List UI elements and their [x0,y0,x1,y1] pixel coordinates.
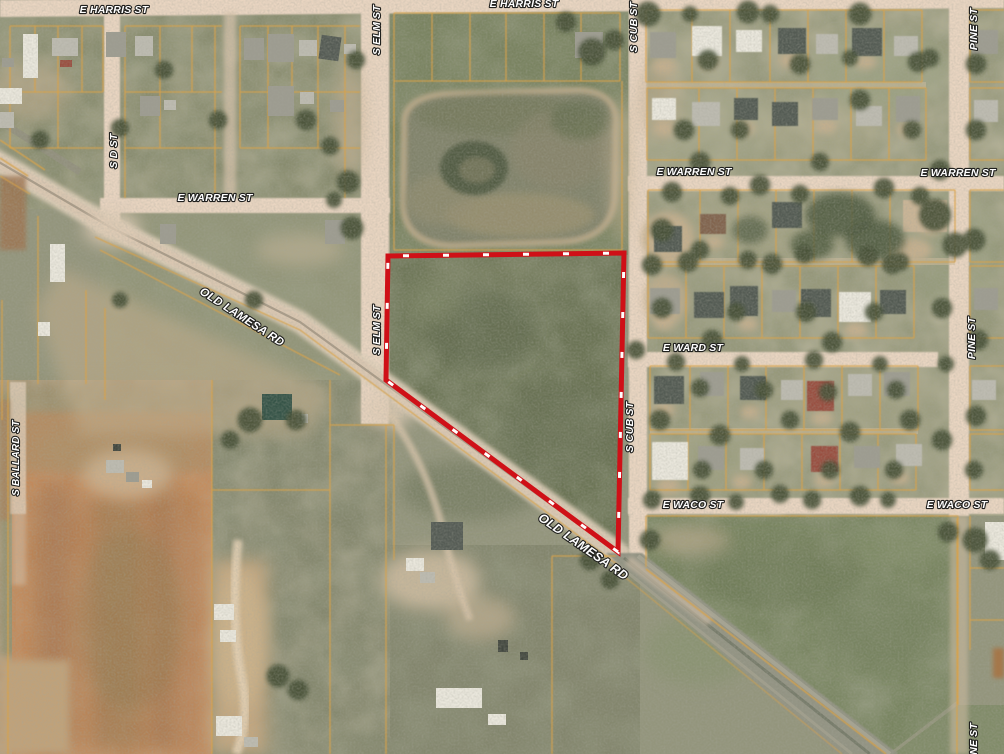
svg-text:E WARREN ST: E WARREN ST [920,167,997,179]
svg-text:E WACO ST: E WACO ST [663,499,725,511]
svg-text:S CUB ST: S CUB ST [628,0,640,52]
svg-text:S ELM ST: S ELM ST [371,304,383,355]
svg-text:E WARREN ST: E WARREN ST [177,192,254,204]
svg-text:E HARRIS ST: E HARRIS ST [490,0,560,10]
svg-text:S ELM ST: S ELM ST [371,4,383,55]
svg-text:PINE ST: PINE ST [968,721,980,754]
svg-text:E WARD ST: E WARD ST [663,342,725,354]
svg-text:S CUB ST: S CUB ST [624,400,636,452]
svg-text:S BALLARD ST: S BALLARD ST [11,419,22,495]
svg-text:E WACO ST: E WACO ST [927,499,989,511]
svg-text:PINE ST: PINE ST [968,6,980,50]
svg-text:S D ST: S D ST [108,132,120,168]
svg-text:E HARRIS ST: E HARRIS ST [80,4,150,16]
svg-text:PINE ST: PINE ST [966,315,978,359]
svg-text:E WARREN ST: E WARREN ST [656,166,733,178]
